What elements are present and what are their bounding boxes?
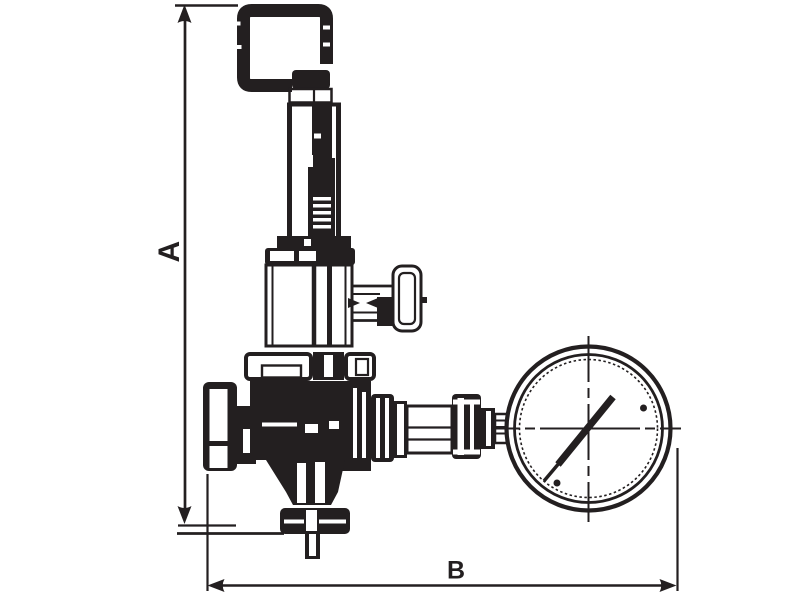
svg-text:B: B — [447, 557, 465, 585]
svg-text:A: A — [153, 241, 186, 263]
